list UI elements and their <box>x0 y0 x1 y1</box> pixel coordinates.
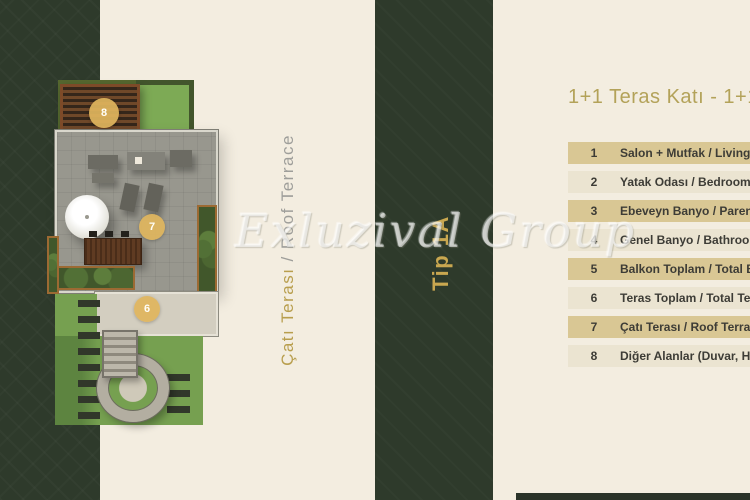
legend-row: 4 Genel Banyo / Bathroom <box>568 229 750 251</box>
legend-row: 8 Diğer Alanlar (Duvar, Havalandırma) <box>568 345 750 367</box>
legend-row: 6 Teras Toplam / Total Terrace <box>568 287 750 309</box>
type-label: Tip 1A <box>428 215 454 291</box>
legend-row: 5 Balkon Toplam / Total Balcony <box>568 258 750 280</box>
planter-box <box>47 236 59 294</box>
legend-row-number: 3 <box>568 204 620 218</box>
plan-badge-8: 8 <box>89 98 119 128</box>
vertical-label-turkish: Çatı Terası <box>278 268 297 366</box>
legend-row-number: 2 <box>568 175 620 189</box>
dining-table <box>84 238 142 265</box>
plan-badge-6: 6 <box>134 296 160 322</box>
legend-row-number: 6 <box>568 291 620 305</box>
legend-row: 3 Ebeveyn Banyo / Parent Bathroom <box>568 200 750 222</box>
legend-row-label: Salon + Mutfak / Living Room <box>620 146 750 160</box>
terrace-armchair <box>170 150 192 167</box>
legend-title: 1+1 Teras Katı - 1+1 Teras Katı <box>568 86 750 109</box>
plan-badge-7: 7 <box>139 214 165 240</box>
planter-box <box>197 205 217 293</box>
terrace-sofa <box>88 155 118 169</box>
legend-table: 1 Salon + Mutfak / Living Room 2 Yatak O… <box>568 142 750 374</box>
stepping-stones <box>167 374 190 422</box>
legend-row-number: 4 <box>568 233 620 247</box>
legend-row: 7 Çatı Terası / Roof Terrace <box>568 316 750 338</box>
legend-row: 2 Yatak Odası / Bedroom <box>568 171 750 193</box>
stair-flight <box>102 330 138 378</box>
legend-row-number: 5 <box>568 262 620 276</box>
brochure-page: 8 7 6 Çatı Terası/ Roof Terrace Tip 1A 1… <box>0 0 750 500</box>
legend-row-label: Ebeveyn Banyo / Parent Bathroom <box>620 204 750 218</box>
legend-row-label: Diğer Alanlar (Duvar, Havalandırma) <box>620 349 750 363</box>
legend-row-label: Genel Banyo / Bathroom <box>620 233 750 247</box>
stepping-stones <box>78 300 100 422</box>
legend-row-number: 7 <box>568 320 620 334</box>
planter-box <box>55 266 135 290</box>
legend-row: 1 Salon + Mutfak / Living Room <box>568 142 750 164</box>
legend-row-number: 1 <box>568 146 620 160</box>
terrace-coffee-table <box>127 152 165 170</box>
roof-terrace-vertical-label: Çatı Terası/ Roof Terrace <box>278 134 298 366</box>
legend-row-number: 8 <box>568 349 620 363</box>
terrace-sofa <box>92 173 114 183</box>
grass-area-hedged <box>136 80 194 132</box>
legend-row-label: Çatı Terası / Roof Terrace <box>620 320 750 334</box>
bottom-edge-bar <box>516 493 750 500</box>
legend-row-label: Yatak Odası / Bedroom <box>620 175 750 189</box>
legend-row-label: Teras Toplam / Total Terrace <box>620 291 750 305</box>
vertical-label-english: / Roof Terrace <box>278 134 297 261</box>
legend-row-label: Balkon Toplam / Total Balcony <box>620 262 750 276</box>
